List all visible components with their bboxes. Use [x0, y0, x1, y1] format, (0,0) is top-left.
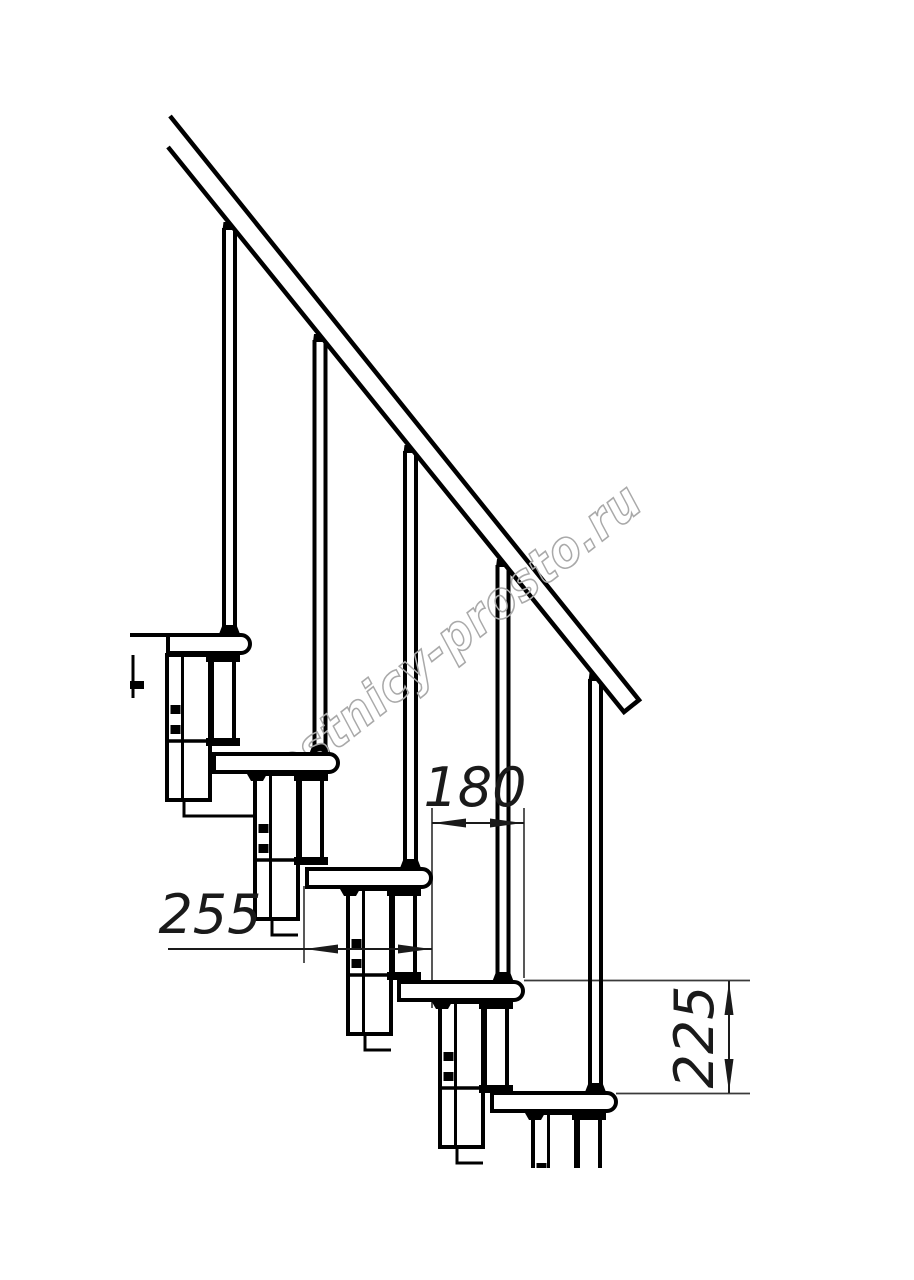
step-module-3 [307, 869, 431, 1050]
dimension-255-label: 255 [158, 883, 261, 946]
staircase-technical-drawing: lestnicy-prosto.ru 180 255 [0, 0, 914, 1280]
dimension-180-label: 180 [423, 756, 526, 819]
dimension-180: 180 [423, 756, 526, 828]
baluster-1 [219, 222, 240, 634]
dimension-225-label: 225 [663, 985, 726, 1088]
step-module-4 [399, 982, 523, 1163]
arrow-left-icon [305, 945, 338, 954]
tread-1 [168, 635, 250, 653]
baluster-5 [585, 673, 606, 1092]
arrow-left-icon [433, 819, 466, 828]
dimension-225: 225 [663, 981, 734, 1093]
staircase-drawing-page: lestnicy-prosto.ru 180 255 [0, 0, 914, 1280]
drawing-crop-mask [495, 1168, 680, 1280]
baluster-2 [310, 334, 331, 753]
